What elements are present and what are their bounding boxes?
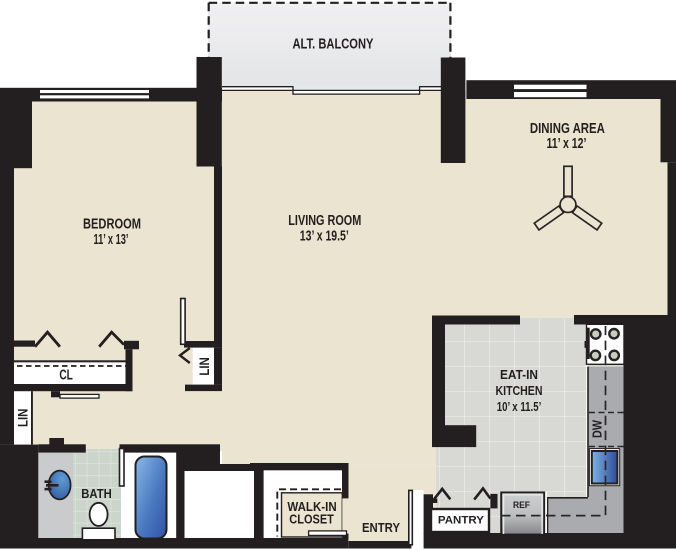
- svg-text:DINING AREA: DINING AREA: [530, 121, 605, 137]
- svg-text:BATH: BATH: [81, 487, 112, 501]
- svg-text:11’ x 13’: 11’ x 13’: [94, 232, 129, 248]
- svg-text:KITCHEN: KITCHEN: [496, 384, 543, 398]
- svg-text:LIN: LIN: [197, 357, 212, 376]
- svg-text:CLOSET: CLOSET: [289, 513, 334, 527]
- svg-text:EAT-IN: EAT-IN: [500, 368, 538, 382]
- svg-text:11’ x 12’: 11’ x 12’: [547, 136, 587, 152]
- svg-text:DW: DW: [590, 420, 604, 438]
- svg-text:REF: REF: [513, 500, 530, 511]
- svg-text:PANTRY: PANTRY: [438, 515, 485, 527]
- svg-text:10’ x 11.5’: 10’ x 11.5’: [497, 400, 542, 414]
- svg-text:CL: CL: [59, 368, 73, 384]
- svg-text:ENTRY: ENTRY: [362, 520, 400, 535]
- svg-text:LIN: LIN: [14, 409, 30, 428]
- svg-text:13’ x 19.5’: 13’ x 19.5’: [300, 228, 349, 244]
- svg-text:ALT. BALCONY: ALT. BALCONY: [293, 37, 374, 53]
- svg-text:LIVING ROOM: LIVING ROOM: [288, 213, 361, 229]
- svg-text:BEDROOM: BEDROOM: [83, 217, 141, 233]
